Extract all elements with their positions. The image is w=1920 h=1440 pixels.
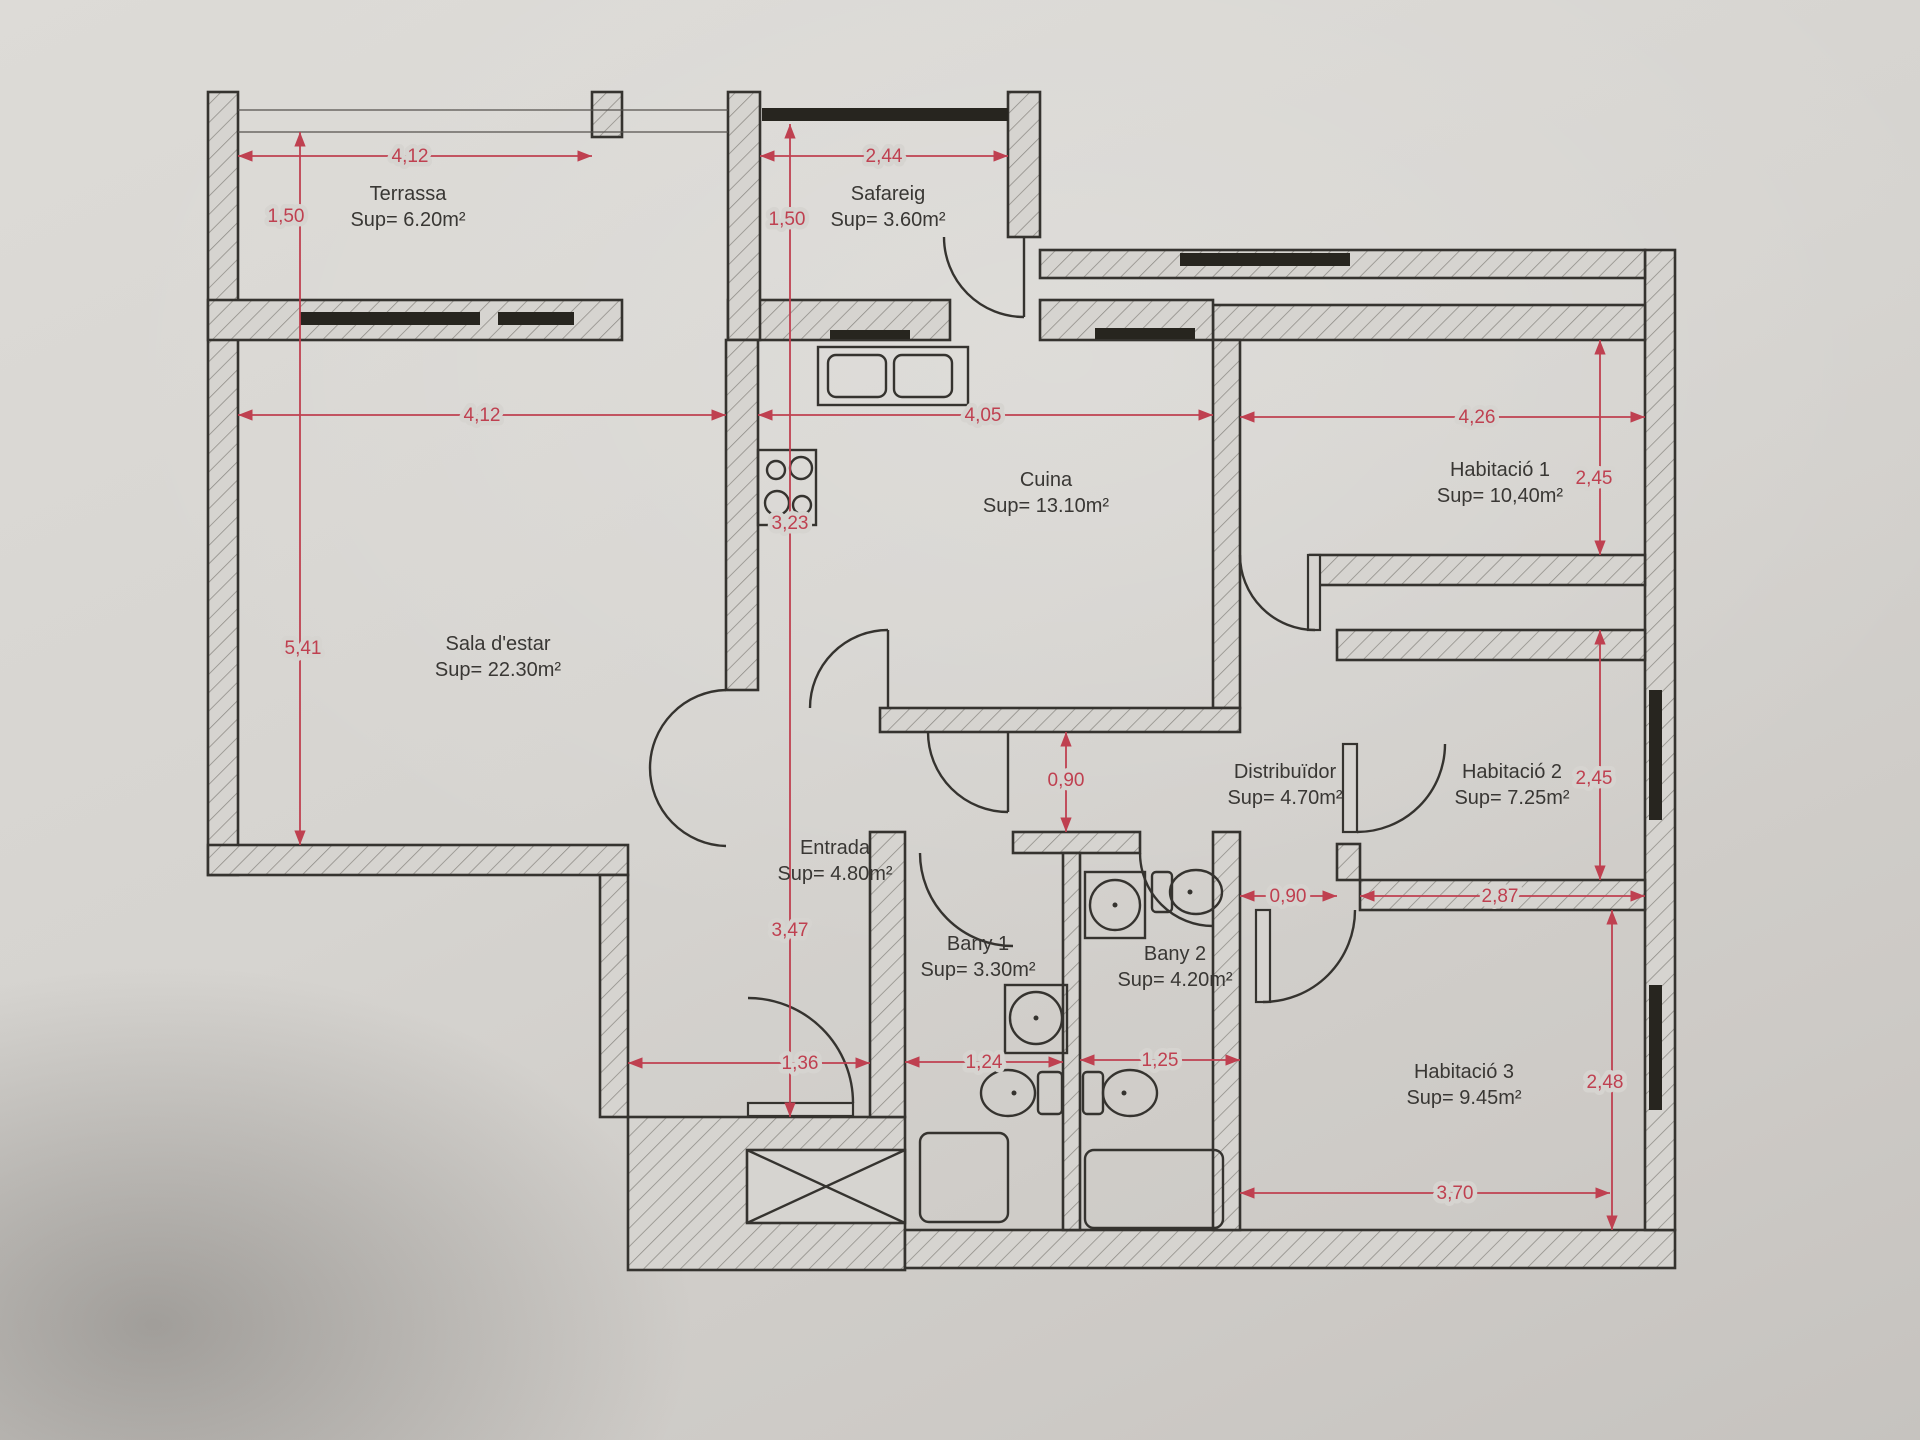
room-safareig-name: Safareig — [851, 183, 926, 205]
bany2-sink-drain — [1113, 903, 1118, 908]
pillar-terrassa-ne — [592, 92, 622, 137]
wall-left-outer — [208, 92, 238, 875]
room-hab1-area: Sup= 10,40m² — [1437, 485, 1564, 507]
room-safareig: Safareig Sup= 3.60m² — [830, 183, 945, 231]
bany1-toilet-tank — [1038, 1072, 1062, 1114]
dim-sala-height: 5,41 — [285, 638, 322, 659]
room-distribuidor-area: Sup= 4.70m² — [1227, 787, 1342, 809]
dim-cuina-width: 4,05 — [965, 405, 1002, 426]
dim-hab1-width: 4,26 — [1459, 407, 1496, 428]
pillar-safareig-east — [1008, 92, 1040, 237]
dim-safareig-width: 2,44 — [866, 146, 903, 167]
dim-sala-width: 4,12 — [464, 405, 501, 426]
room-cuina-name: Cuina — [1020, 469, 1073, 491]
stove-burner-4 — [793, 496, 811, 514]
kitchen-sink-basin-1 — [828, 355, 886, 397]
wall-cuina-south — [880, 708, 1240, 732]
dim-hab1-height: 2,45 — [1576, 468, 1613, 489]
wall-sala-bottom — [208, 845, 628, 875]
bany2-wc-tank — [1083, 1072, 1103, 1114]
cuina-window-1 — [830, 330, 910, 339]
bany2-wc-drain — [1122, 1091, 1127, 1096]
dim-bany1-width: 1,24 — [966, 1052, 1003, 1073]
wall-hab2-north — [1337, 630, 1645, 660]
dim-hab2-width: 2,87 — [1482, 886, 1519, 907]
room-bany1-name: Bany 1 — [947, 933, 1009, 955]
safareig-window — [762, 108, 1008, 121]
room-hab3-area: Sup= 9.45m² — [1406, 1087, 1521, 1109]
dim-hab2-height: 2,45 — [1576, 768, 1613, 789]
dim-hab3-height: 2,48 — [1587, 1072, 1624, 1093]
dim-terrassa-width: 4,12 — [392, 146, 429, 167]
room-entrada-name: Entrada — [800, 837, 871, 859]
hab1-window — [1180, 253, 1350, 266]
wall-cuina-east — [1213, 340, 1240, 708]
room-sala: Sala d'estar Sup= 22.30m² — [435, 633, 562, 681]
room-distribuidor-name: Distribuïdor — [1234, 761, 1337, 783]
bany2-shower — [1085, 1150, 1223, 1228]
sala-double-door-arc-2 — [650, 768, 726, 846]
safareig-door-arc — [944, 237, 1024, 317]
sala-window-1 — [300, 312, 480, 325]
hab1-door-leaf — [1308, 555, 1320, 630]
room-terrassa-name: Terrassa — [370, 183, 448, 205]
room-terrassa: Terrassa Sup= 6.20m² — [350, 183, 465, 231]
dim-corridor-width: 0,90 — [1048, 770, 1085, 791]
room-hab1: Habitació 1 Sup= 10,40m² — [1437, 459, 1564, 507]
dim-hab3-width: 3,70 — [1437, 1183, 1474, 1204]
wall-bany2-east — [1213, 832, 1240, 1230]
floor-plan-photo: 4,12 2,44 1,50 1,50 4,12 4,05 4,26 5,41 … — [0, 0, 1920, 1440]
room-bany2-name: Bany 2 — [1144, 943, 1206, 965]
sala-double-door-arc-1 — [650, 690, 726, 768]
bany1-toilet-bowl — [981, 1070, 1035, 1116]
wall-entrada-west — [600, 875, 628, 1117]
dim-safareig-depth: 1,50 — [769, 209, 806, 230]
hab2-door-arc — [1357, 744, 1445, 832]
entrance-door-arc — [748, 998, 853, 1103]
floor-plan-drawing: 4,12 2,44 1,50 1,50 4,12 4,05 4,26 5,41 … — [0, 0, 1920, 1440]
hab2-door-leaf — [1343, 744, 1357, 832]
wall-sala-east — [726, 340, 758, 690]
wall-banys-north — [1013, 832, 1140, 853]
bany1-toilet-drain — [1012, 1091, 1017, 1096]
room-hab3: Habitació 3 Sup= 9.45m² — [1406, 1061, 1521, 1109]
hab1-door-arc — [1240, 555, 1315, 630]
cuina-door-arc — [810, 630, 888, 708]
distribuidor-door-arc — [928, 732, 1008, 812]
wall-hab2-west-stub — [1337, 844, 1360, 880]
room-sala-area: Sup= 22.30m² — [435, 659, 562, 681]
bany1-sink-drain — [1034, 1016, 1039, 1021]
hab2-window — [1649, 690, 1662, 820]
room-safareig-area: Sup= 3.60m² — [830, 209, 945, 231]
bany1-shower — [920, 1133, 1008, 1222]
room-entrada-area: Sup= 4.80m² — [777, 863, 892, 885]
dim-distribuidor-pass: 0,90 — [1270, 886, 1307, 907]
room-hab2-area: Sup= 7.25m² — [1454, 787, 1569, 809]
room-cuina: Cuina Sup= 13.10m² — [983, 469, 1110, 517]
room-hab1-name: Habitació 1 — [1450, 459, 1550, 481]
stove-burner-2 — [790, 457, 812, 479]
dim-terrassa-depth: 1,50 — [268, 206, 305, 227]
stove-burner-3 — [765, 491, 789, 515]
sala-window-2 — [498, 312, 574, 325]
room-cuina-area: Sup= 13.10m² — [983, 495, 1110, 517]
hab3-door-leaf — [1256, 910, 1270, 1002]
wall-bottom-south — [905, 1230, 1675, 1268]
wall-hab1-south — [1310, 555, 1645, 585]
room-hab2: Habitació 2 Sup= 7.25m² — [1454, 761, 1569, 809]
room-hab2-name: Habitació 2 — [1462, 761, 1562, 783]
bany2-bidet-drain — [1188, 890, 1193, 895]
dim-cuina-height: 3,23 — [772, 513, 809, 534]
hab3-window — [1649, 985, 1662, 1110]
wall-bany-divider — [1063, 853, 1080, 1230]
room-bany1-area: Sup= 3.30m² — [920, 959, 1035, 981]
dim-entrada-height: 3,47 — [772, 920, 809, 941]
cuina-window-2 — [1095, 328, 1195, 339]
bany2-wc-bowl — [1103, 1070, 1157, 1116]
fixtures — [747, 347, 1223, 1228]
room-bany1: Bany 1 Sup= 3.30m² — [920, 933, 1035, 981]
room-terrassa-area: Sup= 6.20m² — [350, 209, 465, 231]
wall-hab1-top — [1213, 305, 1645, 340]
hab3-door-arc — [1263, 910, 1355, 1002]
room-hab3-name: Habitació 3 — [1414, 1061, 1514, 1083]
kitchen-sink-basin-2 — [894, 355, 952, 397]
room-sala-name: Sala d'estar — [446, 633, 551, 655]
dim-entrada-width: 1,36 — [782, 1053, 819, 1074]
dim-bany2-width: 1,25 — [1142, 1050, 1179, 1071]
entrance-door-leaf — [748, 1103, 853, 1116]
room-distribuidor: Distribuïdor Sup= 4.70m² — [1227, 761, 1342, 809]
stove-burner-1 — [767, 461, 785, 479]
room-bany2-area: Sup= 4.20m² — [1117, 969, 1232, 991]
shaft-box — [747, 1150, 905, 1223]
wall-safareig-west — [728, 92, 760, 340]
